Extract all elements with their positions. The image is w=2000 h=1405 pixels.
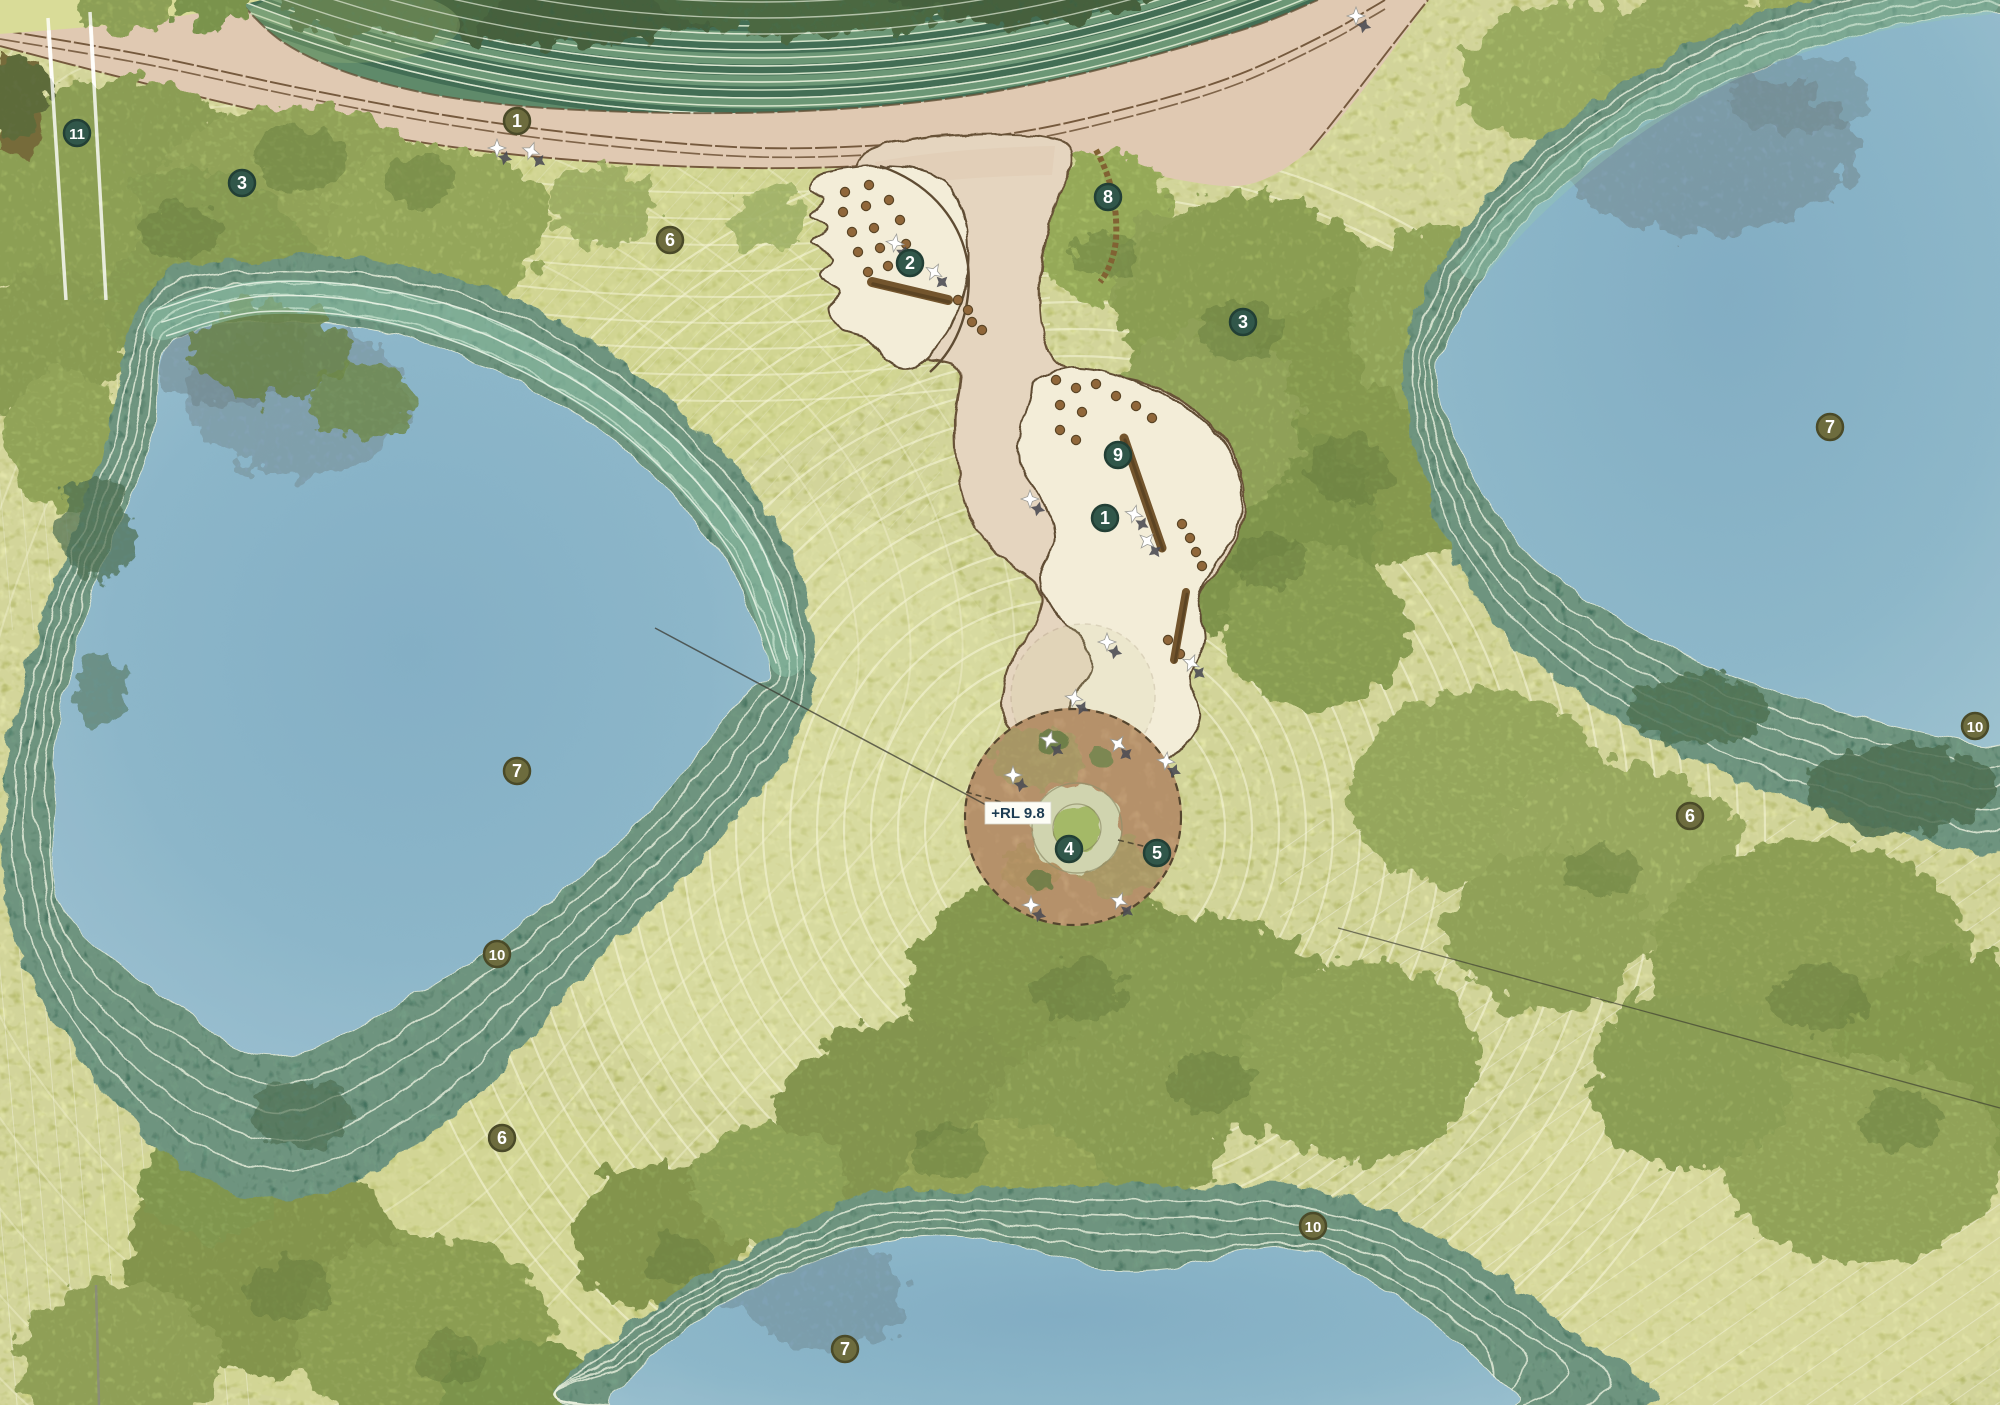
svg-text:7: 7 — [512, 761, 522, 781]
svg-text:7: 7 — [1825, 417, 1835, 437]
svg-text:1: 1 — [512, 111, 522, 131]
svg-text:6: 6 — [1685, 806, 1695, 826]
svg-text:9: 9 — [1113, 445, 1123, 465]
svg-text:3: 3 — [237, 173, 247, 193]
svg-text:6: 6 — [665, 230, 675, 250]
svg-text:10: 10 — [1967, 719, 1984, 736]
svg-text:4: 4 — [1064, 839, 1074, 859]
svg-text:11: 11 — [69, 126, 85, 143]
svg-text:2: 2 — [905, 253, 915, 273]
svg-text:7: 7 — [840, 1339, 850, 1359]
svg-text:10: 10 — [1305, 1219, 1322, 1236]
svg-text:3: 3 — [1238, 312, 1248, 332]
svg-text:10: 10 — [489, 947, 506, 964]
svg-text:6: 6 — [497, 1128, 507, 1148]
svg-text:8: 8 — [1103, 187, 1113, 207]
svg-text:5: 5 — [1152, 843, 1162, 863]
svg-text:1: 1 — [1100, 508, 1110, 528]
svg-text:+RL 9.8: +RL 9.8 — [991, 805, 1045, 822]
